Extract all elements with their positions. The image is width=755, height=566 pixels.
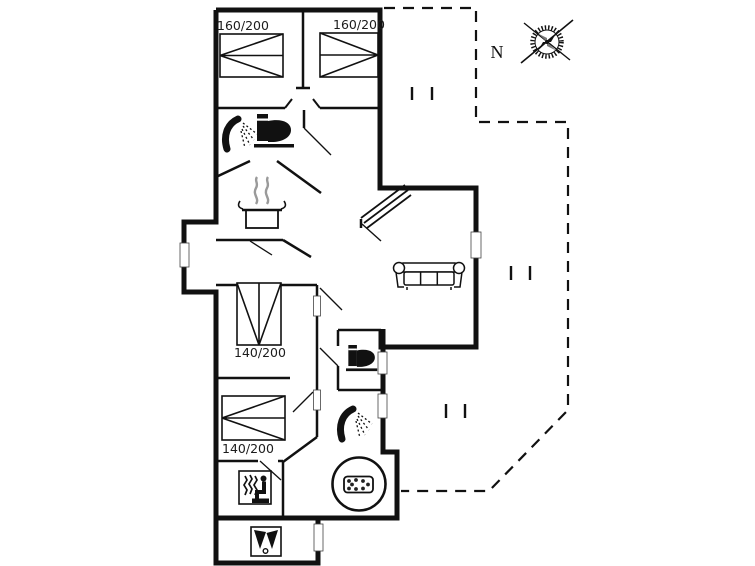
steam [255,177,268,204]
cooking-pot-icon [239,177,286,228]
bedroom3-door [314,296,321,316]
double-bed-icon [237,283,281,345]
double-bed-icon [220,34,283,77]
table-tennis-icon [251,527,281,556]
bed-size-label: 160/200 [333,17,385,32]
bed-size-label: 140/200 [222,441,274,456]
living-room-window [471,232,481,258]
toilet-icon [346,345,377,371]
shower-icon [225,119,257,149]
bathroom2-window [378,394,387,418]
whirlpool-icon [333,458,386,511]
north-label: N [491,42,504,62]
bed-size-label: 160/200 [217,18,269,33]
wc-window [378,352,387,374]
shower-icon [340,409,372,439]
bed-size-label: 140/200 [234,345,286,360]
activity-room-door [314,524,323,551]
entrance-door [180,243,189,267]
toilet-icon [254,114,294,148]
double-bed-icon [222,396,285,440]
floor-plan: 160/200 160/200 140/200 140/200 [0,0,755,566]
bedroom4-door [314,390,321,410]
sauna-icon [239,471,271,504]
compass-rose-icon [521,20,573,63]
double-bed-icon [320,33,378,77]
patio-door-swing [362,224,381,241]
sofa-icon [394,263,465,291]
bay-window [361,185,411,241]
